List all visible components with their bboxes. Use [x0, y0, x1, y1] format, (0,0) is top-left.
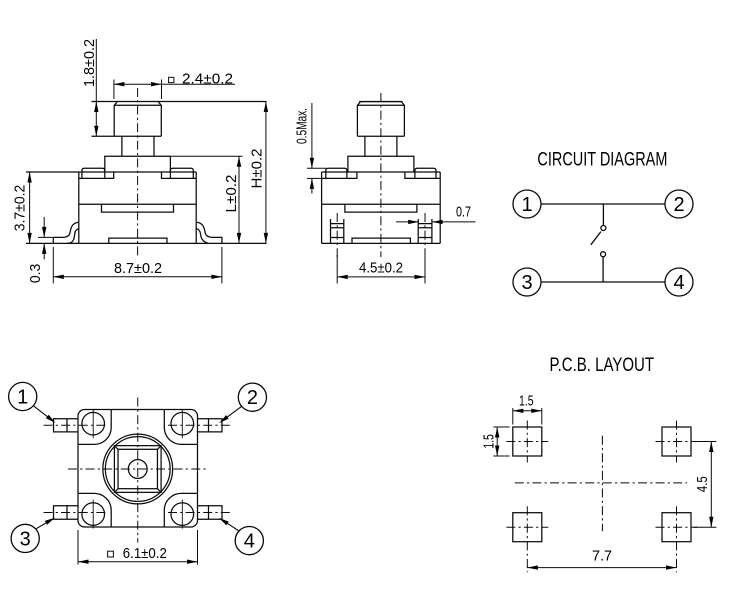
svg-text:2: 2: [673, 194, 684, 216]
svg-text:0.7: 0.7: [456, 203, 471, 220]
svg-text:1.5: 1.5: [519, 392, 534, 409]
svg-text:7.7: 7.7: [592, 548, 612, 565]
svg-text:8.7±0.2: 8.7±0.2: [114, 260, 162, 277]
svg-text:4.5±0.2: 4.5±0.2: [359, 260, 403, 277]
svg-text:2.4±0.2: 2.4±0.2: [182, 70, 233, 87]
svg-text:1.8±0.2: 1.8±0.2: [81, 39, 98, 87]
svg-text:1: 1: [521, 194, 532, 216]
svg-text:4: 4: [673, 272, 684, 294]
svg-text:2: 2: [247, 387, 258, 409]
svg-text:L±0.2: L±0.2: [223, 174, 240, 212]
svg-text:4: 4: [244, 531, 255, 553]
svg-text:4.5: 4.5: [694, 476, 711, 492]
svg-text:1.5: 1.5: [480, 434, 497, 449]
svg-text:3: 3: [20, 528, 31, 550]
svg-text:0.3: 0.3: [27, 264, 44, 284]
svg-text:3.7±0.2: 3.7±0.2: [12, 185, 29, 232]
svg-text:0.5Max.: 0.5Max.: [293, 108, 310, 144]
svg-text:1: 1: [17, 387, 28, 409]
svg-text:P.C.B. LAYOUT: P.C.B. LAYOUT: [550, 355, 655, 376]
svg-text:6.1±0.2: 6.1±0.2: [123, 545, 167, 562]
svg-text:CIRCUIT DIAGRAM: CIRCUIT DIAGRAM: [537, 150, 667, 171]
svg-text:3: 3: [521, 272, 532, 294]
svg-text:H±0.2: H±0.2: [249, 149, 266, 189]
